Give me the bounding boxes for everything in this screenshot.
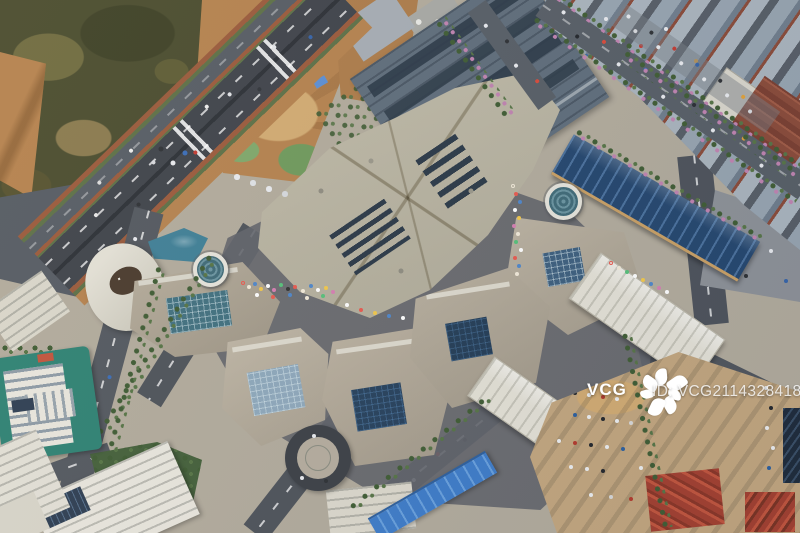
- parked-cars: [468, 12, 471, 15]
- ring-inner-deck: [297, 437, 339, 479]
- aerial-photo-canvas: VCG ID: VCG211432841845: [0, 0, 800, 533]
- glass-dome-east: [545, 183, 582, 220]
- truck-row: [0, 0, 2, 2]
- cars: [134, 207, 136, 209]
- ring-center-mark: [305, 445, 331, 471]
- oval-window-grid: [118, 276, 125, 283]
- courtyard-cars: [285, 425, 287, 427]
- ring-courtyard: [285, 425, 351, 491]
- crosswalk: [256, 36, 299, 79]
- crosswalk: [172, 118, 213, 160]
- mall-skylight-cluster: [329, 199, 411, 276]
- container-stacks: [745, 492, 795, 532]
- crowd-southwest-plaza: [242, 282, 244, 284]
- highway-cars: [18, 235, 21, 238]
- navy-skylight: [351, 382, 407, 431]
- crowd-east-promenade: [512, 185, 514, 187]
- red-roof-accent: [37, 353, 54, 363]
- navy-skylight: [445, 317, 493, 362]
- light-blue-skylight: [247, 364, 306, 416]
- roof-edge-strip: [336, 339, 414, 355]
- parked-cars: [623, 3, 626, 6]
- dark-tower-sliver: [783, 408, 800, 483]
- crowd-canopy-end: [610, 262, 612, 264]
- mall-skylight-cluster: [415, 134, 488, 211]
